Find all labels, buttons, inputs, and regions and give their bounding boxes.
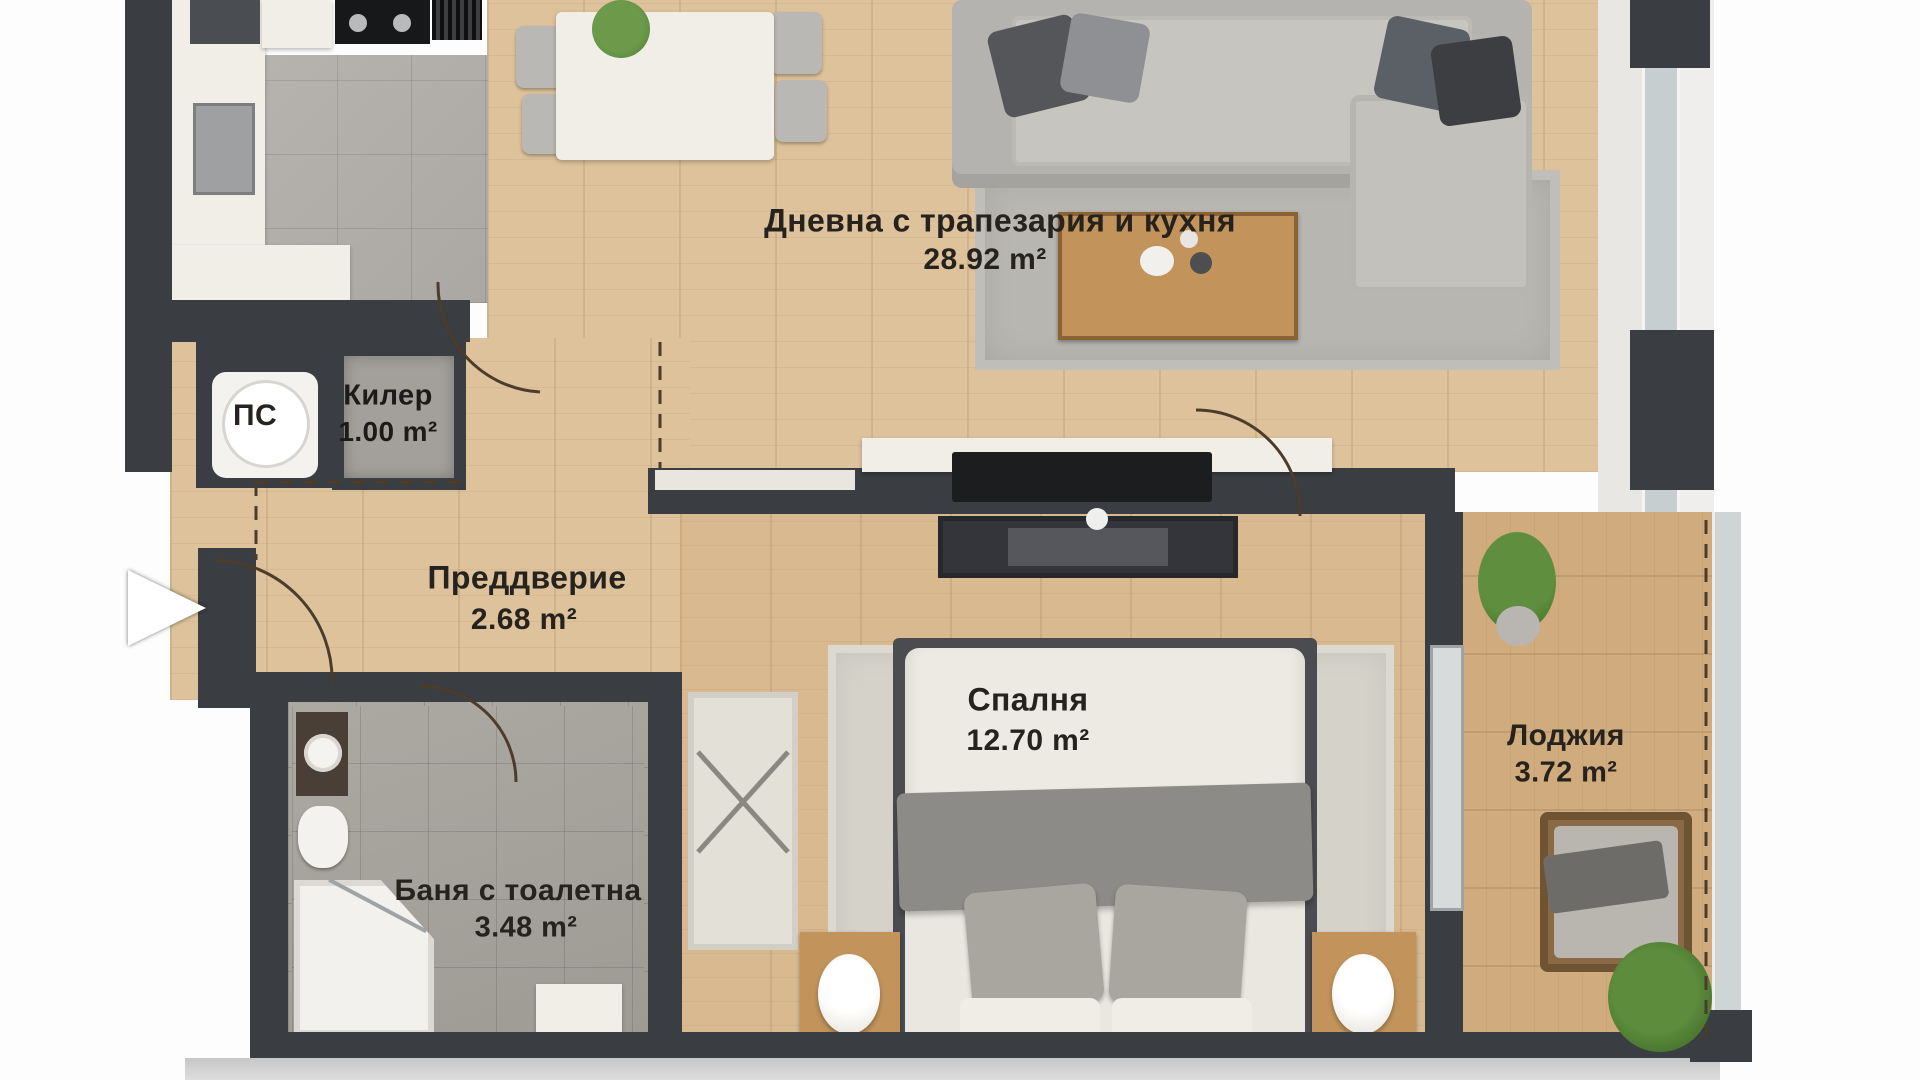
loggia-glass-door (1430, 645, 1464, 911)
loggia-railing-glass (1712, 512, 1741, 1045)
bed-blanket (897, 783, 1314, 912)
kiler-name: Килер (343, 380, 432, 413)
lamp (818, 954, 880, 1034)
sofa-pillow-gray (1059, 12, 1152, 105)
ps-name: ПС (233, 399, 277, 433)
entry-wall-pier (198, 548, 256, 708)
dresser-cup (1086, 508, 1108, 530)
loggia-name: Лоджия (1507, 719, 1625, 753)
stove (335, 0, 430, 44)
living-room-area: 28.92 m² (923, 243, 1046, 277)
sofa-pillow-black (1430, 35, 1523, 128)
dresser-panel (1008, 528, 1168, 566)
vestibule-name: Преддверие (427, 560, 626, 597)
bedroom-name: Спалня (968, 682, 1089, 719)
table-plant (592, 0, 650, 58)
right-pillar-top (1630, 0, 1710, 68)
bedroom-bench (688, 692, 798, 950)
vent-grill (432, 0, 482, 40)
kitchen-cabinet-top (262, 0, 332, 48)
bed-pillow (963, 882, 1105, 1011)
loggia-area: 3.72 m² (1515, 757, 1618, 790)
dining-chair (775, 80, 827, 142)
kitchen-sink-panel (193, 103, 255, 195)
burner-icon (393, 14, 411, 32)
right-pillar-mid (1630, 330, 1714, 490)
entrance-arrow-icon (128, 570, 206, 646)
bath-vanity (296, 712, 348, 796)
floor-plan: Дневна с трапезария и кухня 28.92 m² Кил… (0, 0, 1920, 1080)
living-room-name: Дневна с трапезария и кухня (764, 203, 1236, 240)
tv-screen (952, 452, 1212, 502)
vestibule-area: 2.68 m² (471, 603, 577, 637)
dining-table (556, 12, 774, 160)
table-bowl (1140, 246, 1174, 276)
lamp (1332, 954, 1394, 1034)
bathroom-area: 3.48 m² (475, 912, 578, 945)
loggia-plant-bottom (1608, 942, 1712, 1052)
ground-shadow (185, 1058, 1720, 1080)
bath-sink (304, 734, 342, 772)
fridge-top (190, 0, 260, 44)
kitchen-lower-wall (125, 300, 470, 342)
sofa-chaise (1350, 95, 1532, 293)
bedroom-area: 12.70 m² (966, 724, 1089, 758)
kiler-area: 1.00 m² (338, 416, 437, 448)
bench-x-strap (688, 692, 798, 950)
dining-chair (770, 12, 822, 74)
tv-wall-shelf (655, 470, 855, 490)
media-dresser (938, 516, 1238, 578)
kitchen-counter-bottom (170, 245, 350, 303)
bed-pillow (1108, 884, 1248, 1011)
loggia-plant-pot (1496, 606, 1540, 646)
table-ball-dark (1190, 252, 1212, 274)
toilet (298, 806, 348, 868)
burner-icon (349, 14, 367, 32)
bathroom-name: Баня с тоалетна (395, 874, 642, 908)
left-exterior-wall (125, 0, 172, 472)
